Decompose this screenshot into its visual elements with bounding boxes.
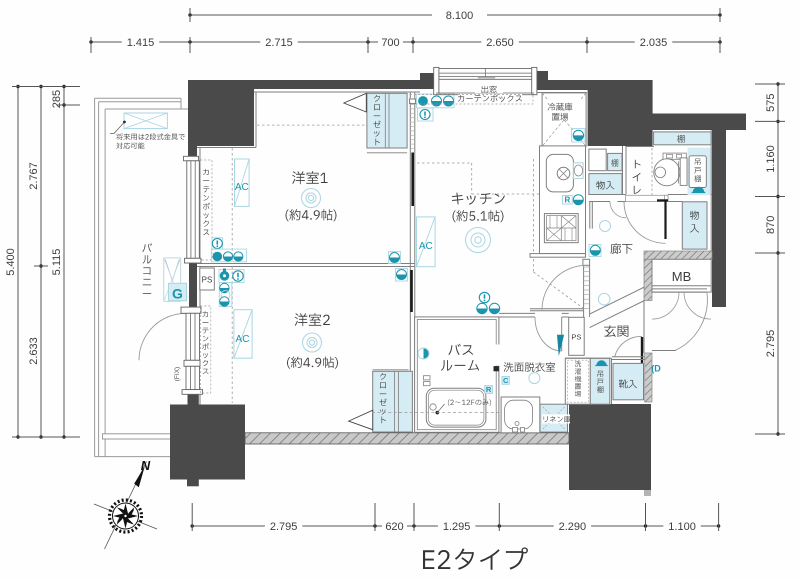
svg-text:G: G	[172, 285, 183, 301]
svg-text:1.160: 1.160	[765, 145, 777, 173]
svg-text:2.795: 2.795	[765, 330, 777, 358]
svg-text:2.650: 2.650	[486, 37, 514, 49]
svg-text:MB: MB	[672, 269, 692, 284]
svg-text:1.100: 1.100	[668, 521, 696, 533]
svg-text:(FIX): (FIX)	[174, 367, 181, 381]
svg-text:5.115: 5.115	[51, 249, 63, 276]
svg-text:8.100: 8.100	[446, 10, 474, 22]
svg-text:2.715: 2.715	[265, 37, 293, 49]
svg-text:(D: (D	[651, 364, 661, 374]
svg-text:AC: AC	[235, 182, 249, 193]
svg-text:2.290: 2.290	[559, 521, 587, 533]
svg-text:PS: PS	[202, 276, 213, 285]
svg-text:2.035: 2.035	[640, 37, 668, 49]
svg-text:N: N	[141, 458, 151, 473]
svg-text:R: R	[486, 385, 492, 394]
svg-text:PS: PS	[571, 333, 581, 342]
svg-text:R: R	[565, 196, 571, 205]
svg-text:C: C	[503, 376, 509, 385]
svg-text:620: 620	[385, 521, 403, 533]
svg-text:870: 870	[765, 216, 777, 234]
svg-text:2.633: 2.633	[28, 337, 40, 365]
svg-text:1.295: 1.295	[443, 521, 471, 533]
svg-text:AC: AC	[419, 241, 433, 252]
svg-text:575: 575	[765, 94, 777, 112]
svg-text:1.415: 1.415	[127, 37, 155, 49]
svg-text:2.795: 2.795	[270, 521, 298, 533]
svg-text:AC: AC	[236, 334, 250, 345]
svg-text:2.767: 2.767	[28, 162, 40, 190]
svg-text:5.400: 5.400	[5, 248, 17, 276]
svg-text:700: 700	[381, 37, 399, 49]
